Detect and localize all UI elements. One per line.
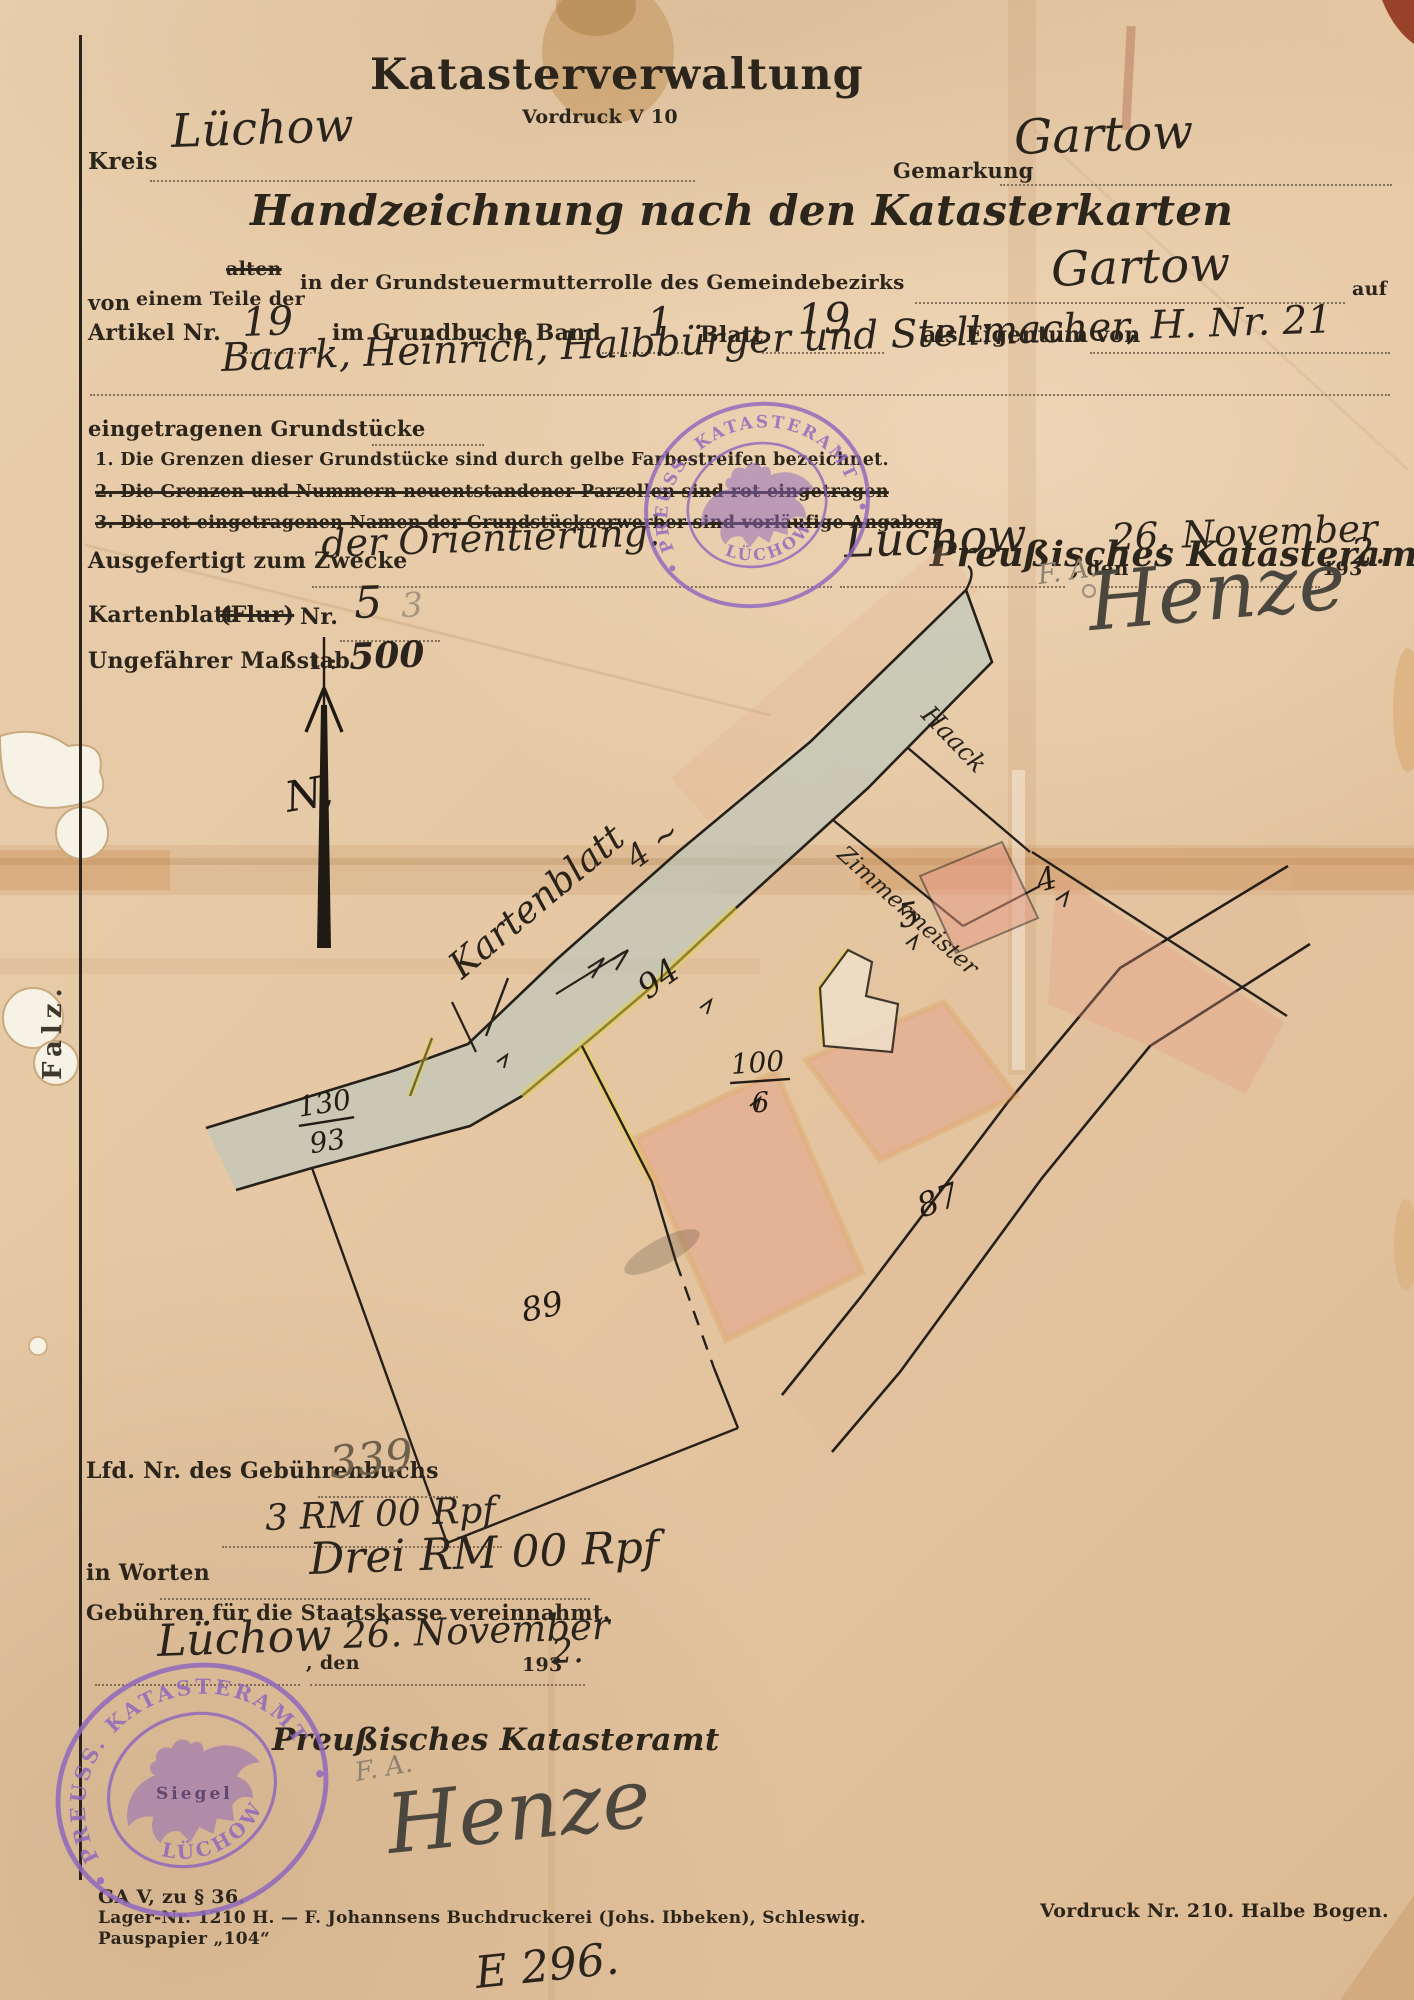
stamps-layer: PREUSS. KATASTERAMT LÜCHOW bbox=[0, 0, 1414, 2000]
stamp-katasteramt-bottom bbox=[16, 1620, 369, 1959]
scanned-cadastre-document: Falz. Katasterverwaltung Vordruck V 10 K… bbox=[0, 0, 1414, 2000]
stamp-katasteramt-top bbox=[620, 375, 895, 634]
